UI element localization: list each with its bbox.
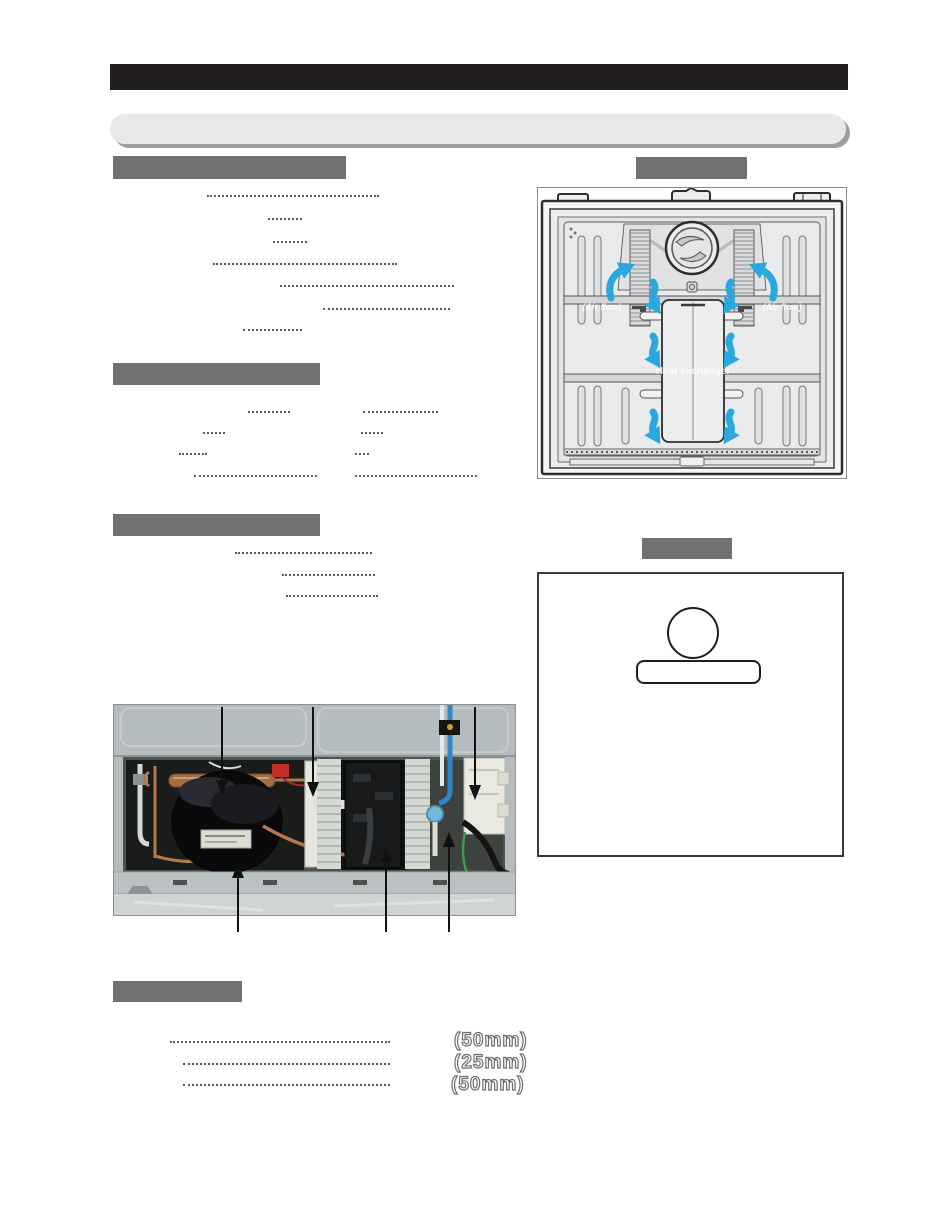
dotted-leader <box>183 1063 390 1065</box>
dotted-leader <box>207 195 379 197</box>
airflow-arrow-down-icon <box>653 282 655 304</box>
note-circle-shape <box>667 607 719 659</box>
airflow-arrow-down-icon <box>653 336 655 358</box>
dotted-leader <box>286 595 378 597</box>
dotted-leader <box>183 1084 390 1086</box>
dotted-leader <box>243 329 302 331</box>
airflow-arrow-down-icon <box>729 412 731 434</box>
clearance-section-header <box>113 981 242 1002</box>
airflow-arrow-down-icon <box>729 282 731 304</box>
dotted-leader <box>248 411 290 413</box>
section-header-3 <box>113 514 320 536</box>
note-box <box>537 572 844 857</box>
subtitle-pill <box>110 114 846 144</box>
dotted-leader <box>323 308 450 310</box>
dotted-leader <box>179 453 207 455</box>
dotted-leader <box>355 453 369 455</box>
clearance-value-top: (50mm) <box>451 1074 531 1095</box>
dotted-leader <box>170 1041 390 1043</box>
air-flow-label-left: (Air flow) <box>583 302 622 312</box>
compressor-compartment-photo <box>113 704 516 935</box>
dotted-leader <box>268 218 302 220</box>
dotted-leader <box>282 574 375 576</box>
clearance-value-rear: (50mm) <box>454 1030 534 1051</box>
dotted-leader <box>273 241 307 243</box>
freezer-interior-diagram: (Air flow) (Air flow) Heat exchanger <box>538 188 846 478</box>
note-pill-shape <box>636 660 761 684</box>
heat-exchanger-label: Heat exchanger <box>656 366 731 377</box>
manual-page: (Air flow) (Air flow) Heat exchanger <box>0 0 935 1210</box>
airflow-arrow-down-icon <box>729 336 731 358</box>
airflow-figure-header <box>636 157 747 179</box>
dotted-leader <box>361 432 383 434</box>
dotted-leader <box>355 475 477 477</box>
airflow-figure: (Air flow) (Air flow) Heat exchanger <box>537 187 847 479</box>
airflow-arrow-down-icon <box>653 412 655 434</box>
section-header-1 <box>113 156 346 179</box>
dotted-leader <box>194 475 317 477</box>
section-header-2 <box>113 363 320 385</box>
dotted-leader <box>280 285 454 287</box>
dotted-leader <box>213 263 397 265</box>
clearance-value-side: (25mm) <box>454 1052 534 1073</box>
dotted-leader <box>363 411 438 413</box>
dotted-leader <box>235 552 372 554</box>
note-header <box>642 538 732 559</box>
air-flow-label-right: (Air flow) <box>763 302 802 312</box>
dotted-leader <box>203 432 225 434</box>
page-title-bar <box>110 64 848 90</box>
